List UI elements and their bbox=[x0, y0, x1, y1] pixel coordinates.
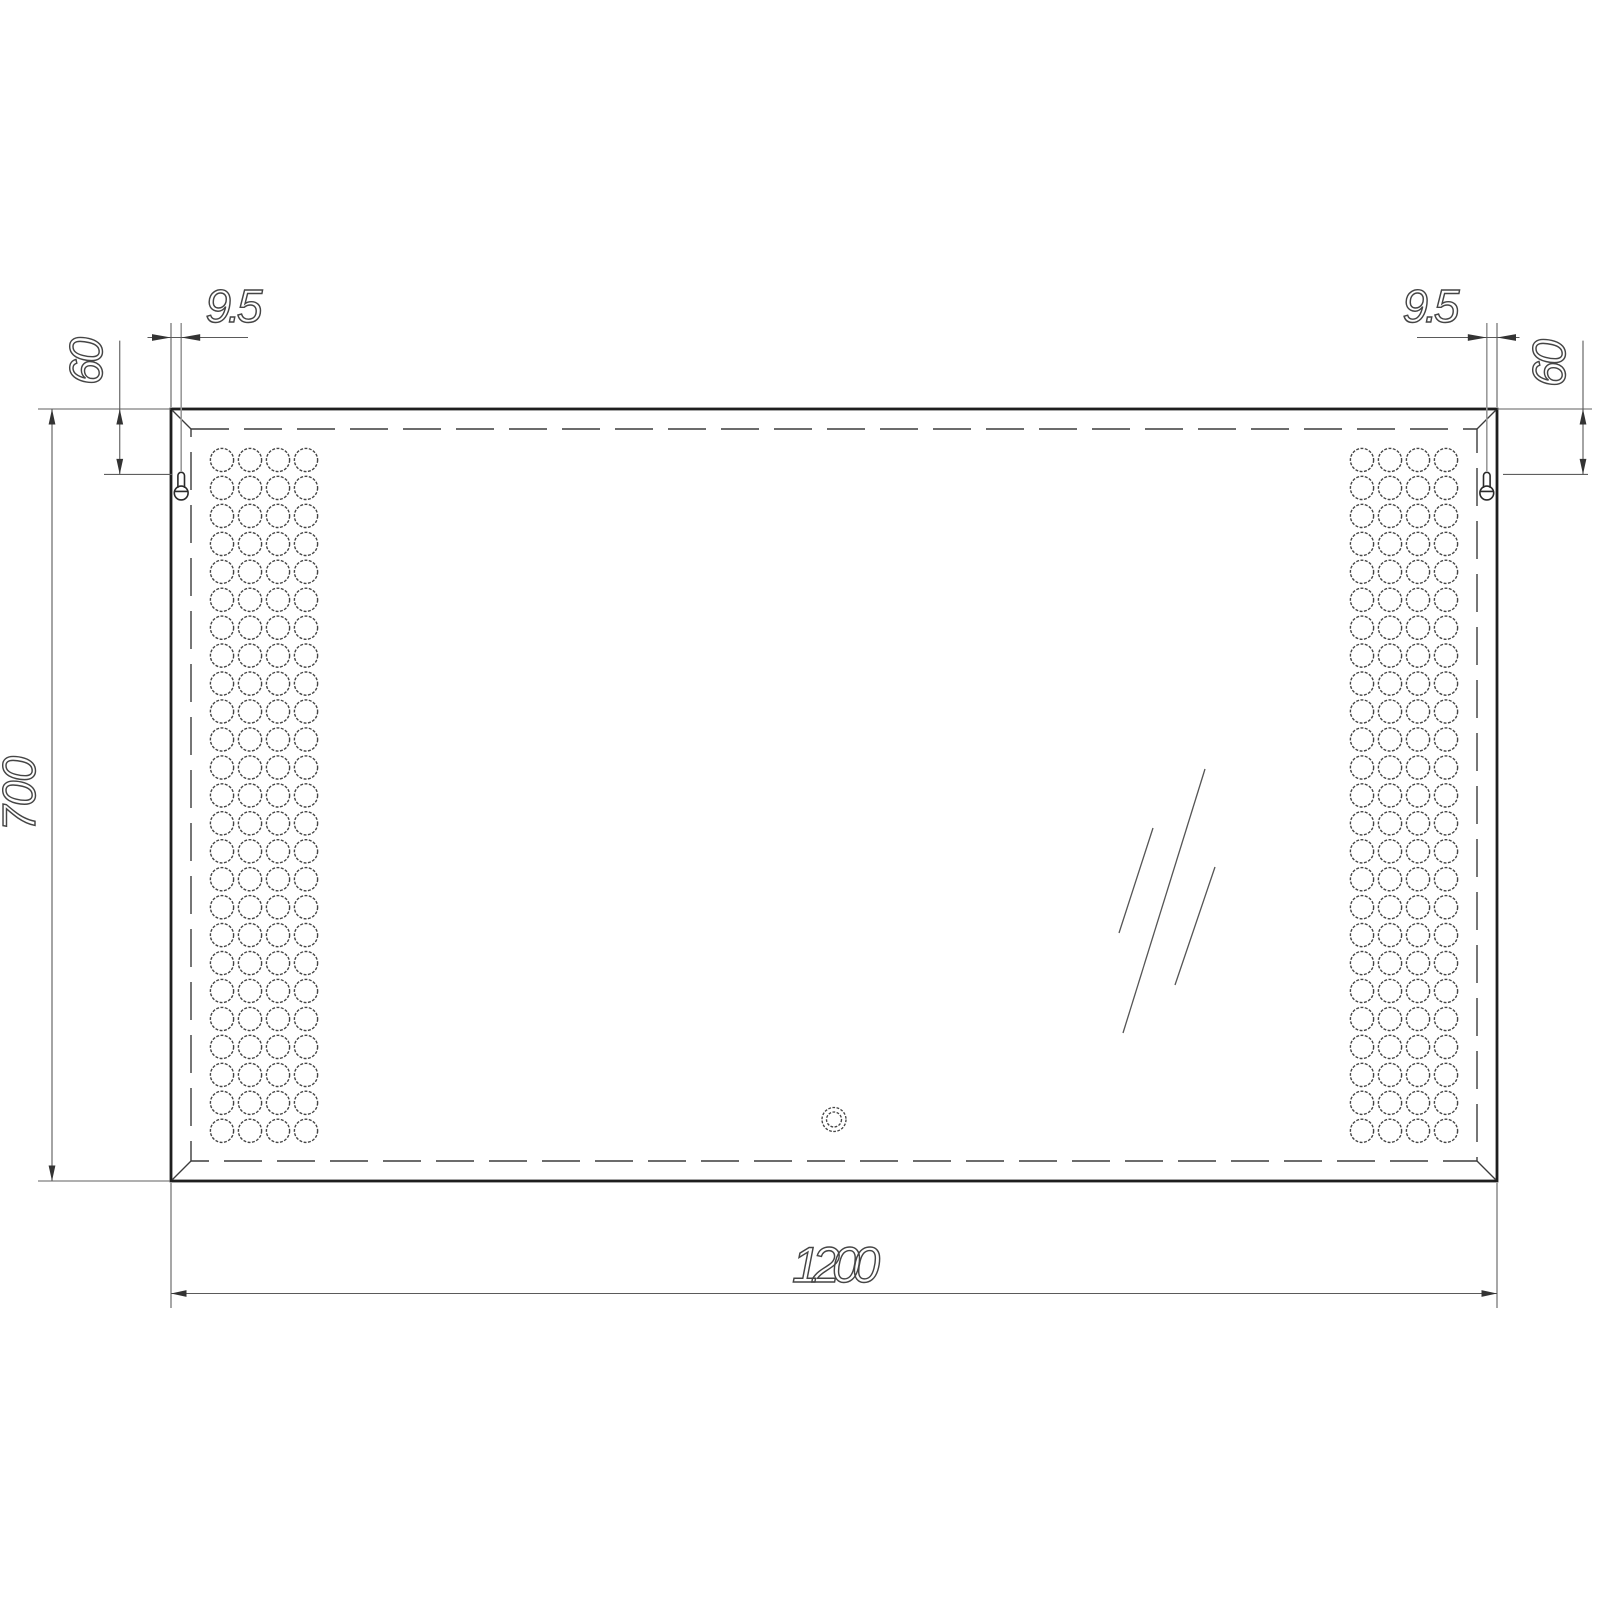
svg-text:9.5: 9.5 bbox=[1403, 280, 1460, 332]
svg-text:700: 700 bbox=[0, 756, 45, 831]
svg-text:9.5: 9.5 bbox=[206, 280, 263, 332]
svg-text:60: 60 bbox=[1523, 339, 1575, 387]
svg-text:1200: 1200 bbox=[792, 1237, 880, 1293]
svg-text:60: 60 bbox=[60, 337, 112, 385]
